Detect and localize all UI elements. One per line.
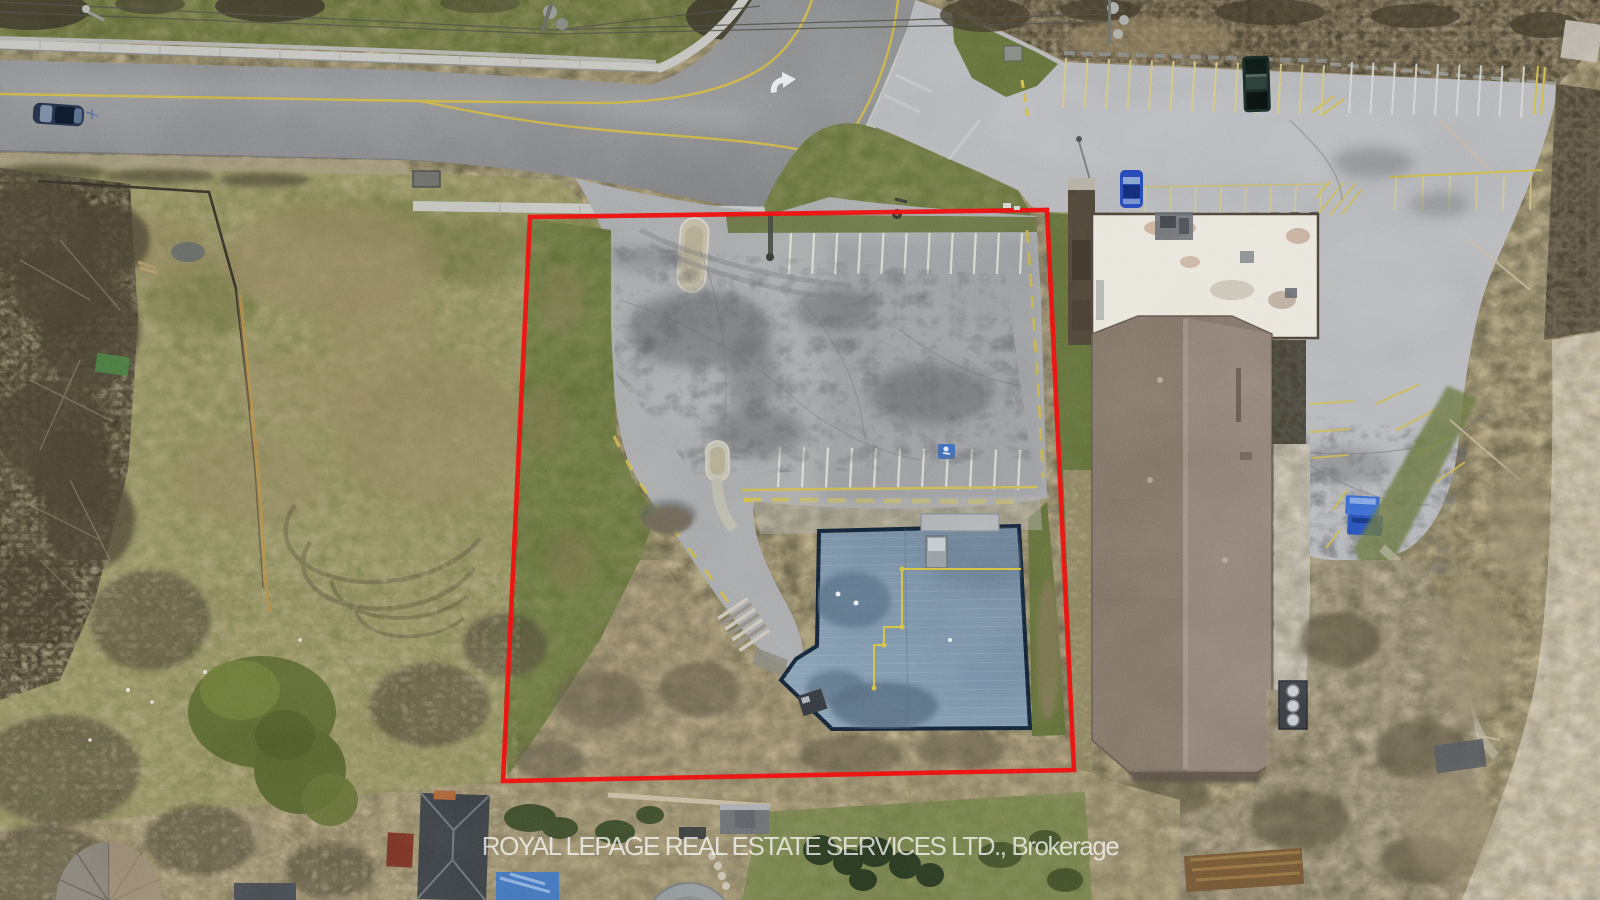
- svg-text:ROYAL LEPAGE REAL ESTATE SERVI: ROYAL LEPAGE REAL ESTATE SERVICES LTD., …: [482, 831, 1119, 861]
